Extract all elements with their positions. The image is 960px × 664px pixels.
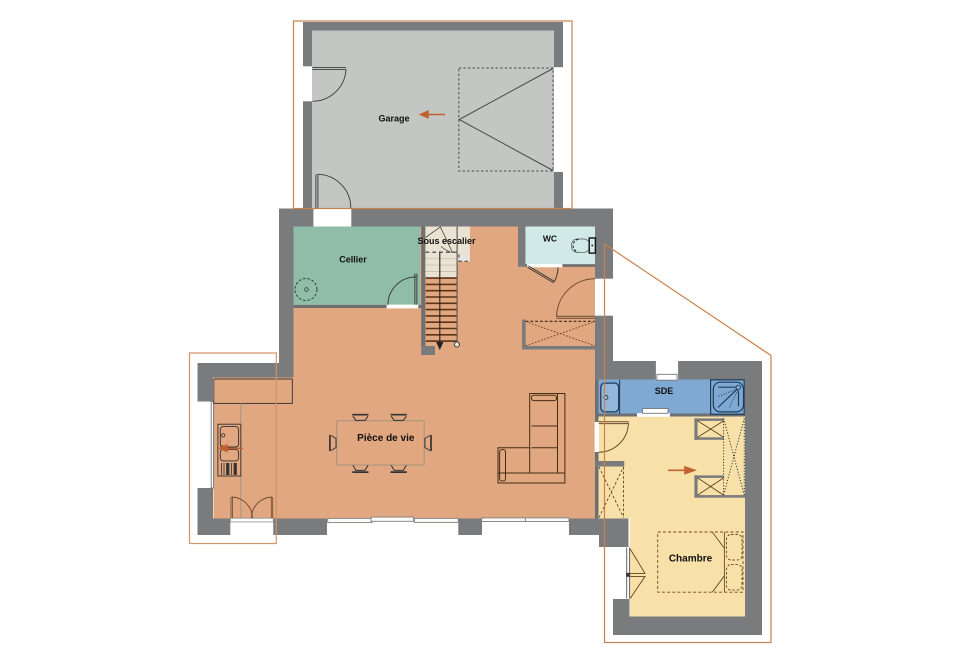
svg-text:WC: WC [543, 234, 557, 244]
svg-text:Cellier: Cellier [339, 255, 367, 265]
svg-text:SDE: SDE [655, 386, 674, 396]
svg-text:Chambre: Chambre [669, 554, 713, 565]
svg-text:Sous escalier: Sous escalier [417, 236, 476, 246]
svg-text:Garage: Garage [378, 114, 409, 124]
svg-text:Pièce de vie: Pièce de vie [357, 433, 415, 444]
